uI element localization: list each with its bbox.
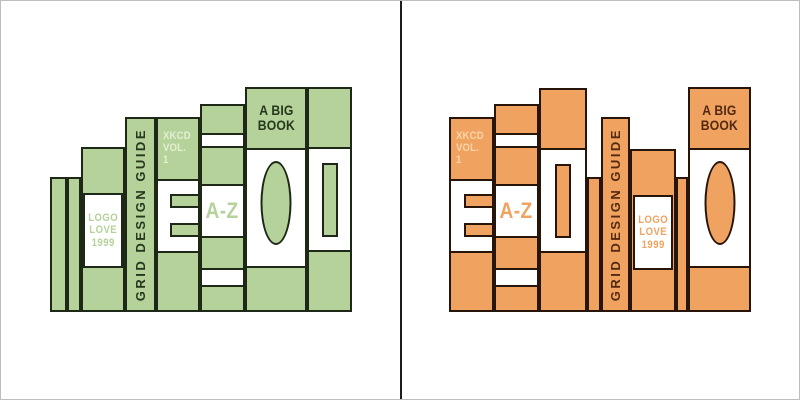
az-top-band xyxy=(496,133,537,148)
book-thin xyxy=(676,177,688,312)
big-book-title: A BIG BOOK xyxy=(690,103,749,133)
book-thin xyxy=(587,177,601,312)
grid-guide-spine-title-text: GRID DESIGN GUIDE xyxy=(608,128,623,301)
book-xkcd: XKCD VOL. 1 xyxy=(449,117,494,312)
two-kinds-of-people-bookshelf-illustration: LOGO LOVE 1999GRID DESIGN GUIDEXKCD VOL.… xyxy=(0,0,800,400)
xkcd-spine-title-text: XKCD VOL. 1 xyxy=(456,130,487,166)
book-logo-love: LOGO LOVE 1999 xyxy=(630,149,676,312)
panel-divider xyxy=(400,1,402,399)
az-label: A-Z xyxy=(496,184,537,238)
az-label-text: A-Z xyxy=(500,200,533,222)
book-window xyxy=(539,88,587,312)
xkcd-spine-title: XKCD VOL. 1 xyxy=(451,130,492,166)
e-notch-bottom xyxy=(464,223,492,237)
big-book-title-text: A BIG BOOK xyxy=(701,103,738,133)
e-notch-top xyxy=(464,194,492,208)
az-bottom-band xyxy=(496,268,537,287)
e-label xyxy=(451,179,492,253)
logo-love-label: LOGO LOVE 1999 xyxy=(633,195,673,270)
grid-guide-spine-title: GRID DESIGN GUIDE xyxy=(603,119,628,310)
logo-love-label-text: LOGO LOVE 1999 xyxy=(638,214,668,252)
book-grid-guide: GRID DESIGN GUIDE xyxy=(601,117,630,312)
big-book-ellipse xyxy=(704,161,735,245)
window-rect xyxy=(555,164,571,238)
book-a-z: A-Z xyxy=(494,104,539,312)
book-a-big-book: A BIG BOOK xyxy=(688,87,751,312)
